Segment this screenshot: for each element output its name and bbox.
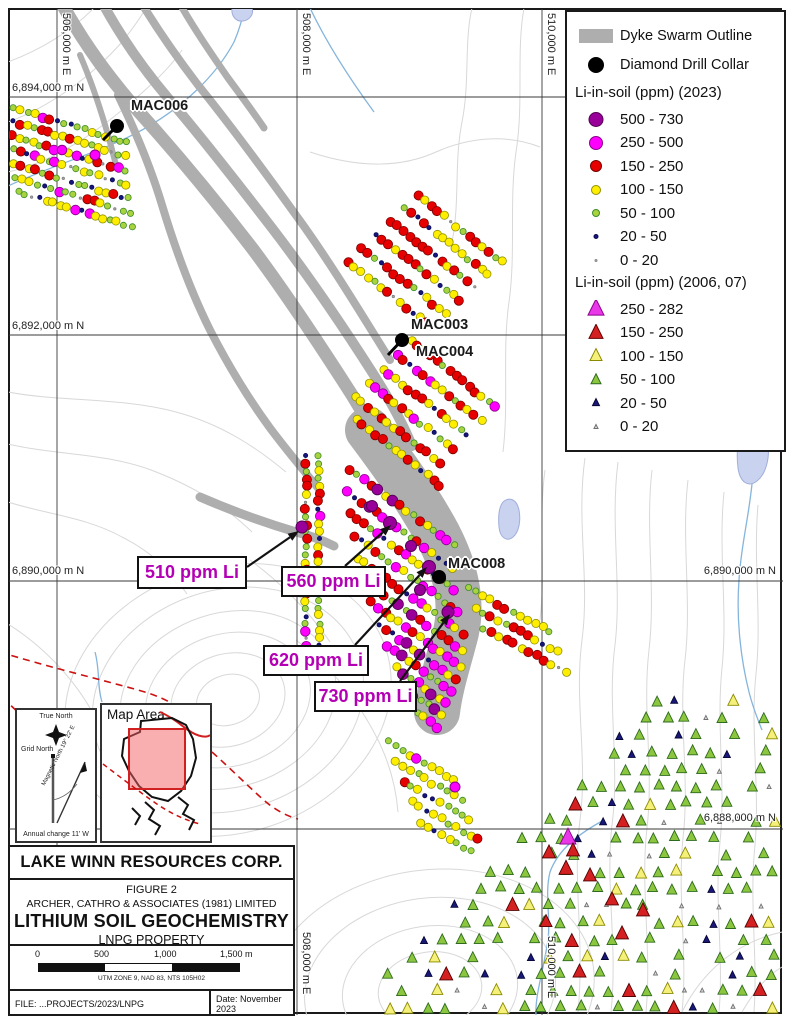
soil-sample-circle (390, 399, 398, 407)
soil-sample-circle (314, 610, 322, 618)
soil-sample-circle (122, 168, 128, 174)
legend-circle-icon (592, 209, 600, 217)
soil-sample-triangle (476, 883, 486, 893)
soil-sample-triangle (766, 970, 776, 980)
soil-sample-triangle (641, 712, 651, 722)
soil-sample-triangle (594, 914, 605, 925)
soil-sample-circle (438, 283, 442, 287)
soil-sample-triangle (654, 971, 658, 975)
soil-sample-circle (315, 453, 321, 459)
soil-sample-circle (365, 274, 373, 282)
soil-sample-triangle (730, 729, 740, 739)
soil-sample-circle (117, 138, 123, 144)
soil-sample-circle (379, 261, 383, 265)
soil-sample-circle (483, 270, 491, 278)
soil-sample-triangle (536, 832, 546, 842)
scale-tick: 0 (35, 949, 40, 959)
callout-ppm-0: 510 ppm Li (137, 556, 247, 589)
soil-sample-circle (301, 597, 309, 605)
soil-sample-triangle (697, 764, 707, 774)
legend-row-dyke: Dyke Swarm Outline (567, 25, 784, 47)
soil-sample-triangle (460, 917, 470, 927)
soil-sample-circle (73, 166, 79, 172)
soil-sample-triangle (572, 882, 582, 892)
soil-sample-circle (393, 743, 399, 749)
legend-range-label: 20 - 50 (620, 395, 667, 412)
soil-sample-circle (111, 136, 117, 142)
soil-sample-triangle (763, 916, 774, 927)
callout-ppm-1: 560 ppm Li (281, 566, 386, 597)
legend-header-2023: Li-in-soil (ppm) (2023) (575, 84, 722, 101)
soil-sample-circle (416, 633, 424, 641)
soil-sample-triangle (459, 967, 469, 977)
date-label: Date: November 2023 (209, 991, 293, 1016)
soil-sample-circle (115, 152, 121, 158)
soil-sample-circle (315, 527, 323, 535)
soil-sample-triangle (554, 883, 564, 893)
legend-circle-icon (591, 185, 601, 195)
soil-sample-triangle (503, 865, 513, 875)
soil-sample-circle (382, 418, 390, 426)
soil-sample-circle (357, 267, 365, 275)
soil-sample-circle (459, 427, 465, 433)
soil-sample-triangle (635, 782, 645, 792)
scale-tick: 1,000 (154, 949, 177, 959)
soil-sample-triangle (670, 969, 680, 979)
datum-note: UTM ZONE 9, NAD 83, NTS 105H02 (10, 975, 293, 982)
soil-sample-triangle (736, 952, 743, 959)
soil-sample-circle (23, 137, 29, 143)
soil-sample-circle (90, 185, 94, 189)
soil-sample-circle (62, 189, 68, 195)
soil-sample-circle (120, 222, 126, 228)
soil-sample-circle (401, 638, 412, 649)
soil-sample-circle (34, 182, 40, 188)
soil-sample-triangle (631, 885, 641, 895)
soil-sample-circle (419, 291, 423, 295)
soil-sample-triangle (737, 985, 747, 995)
soil-sample-triangle (517, 833, 527, 843)
soil-sample-triangle (679, 711, 689, 721)
soil-sample-circle (7, 131, 16, 140)
soil-sample-circle (58, 160, 66, 168)
north-arrow-graphic (17, 710, 95, 841)
soil-sample-triangle (499, 917, 510, 928)
soil-sample-triangle (721, 850, 731, 860)
soil-sample-triangle (704, 716, 708, 720)
soil-sample-triangle (682, 988, 686, 992)
soil-sample-circle (411, 311, 415, 315)
figure-block: FIGURE 2 ARCHER, CATHRO & ASSOCIATES (19… (10, 880, 293, 946)
soil-sample-triangle (709, 831, 719, 841)
soil-sample-triangle (576, 1000, 586, 1010)
soil-sample-circle (401, 205, 407, 211)
soil-sample-highlight (296, 521, 308, 533)
soil-sample-highlight (406, 541, 417, 552)
scale-tick: 500 (94, 949, 109, 959)
soil-sample-circle (546, 629, 552, 635)
soil-sample-triangle (577, 780, 587, 790)
soil-sample-triangle (671, 696, 678, 703)
soil-sample-circle (302, 514, 308, 520)
soil-sample-circle (421, 447, 430, 456)
drill-hole-label: MAC006 (131, 98, 188, 114)
legend-row: 0 - 20 (567, 249, 784, 271)
legend-triangle-icon (586, 347, 606, 365)
soil-sample-circle (65, 134, 74, 143)
soil-sample-circle (391, 631, 395, 635)
scale-bar (38, 963, 240, 972)
soil-sample-circle (469, 410, 478, 419)
soil-sample-triangle (618, 949, 629, 960)
soil-sample-triangle (569, 797, 582, 810)
soil-sample-triangle (653, 867, 663, 877)
soil-sample-triangle (723, 751, 730, 758)
soil-sample-circle (127, 210, 133, 216)
soil-sample-circle (302, 605, 308, 611)
soil-sample-triangle (397, 986, 407, 996)
legend-row: 100 - 150 (567, 345, 784, 367)
legend-row: 150 - 250 (567, 322, 784, 344)
legend-range-label: 50 - 100 (620, 205, 675, 222)
soil-sample-triangle (506, 897, 519, 910)
legend-triangle-icon (586, 394, 606, 412)
legend-circle-icon (595, 259, 598, 262)
soil-sample-triangle (670, 831, 680, 841)
soil-sample-triangle (731, 1004, 735, 1008)
soil-sample-circle (399, 762, 407, 770)
legend-range-label: 100 - 150 (620, 348, 683, 365)
soil-sample-triangle (712, 866, 722, 876)
soil-sample-circle (342, 487, 352, 497)
soil-sample-circle (304, 501, 306, 503)
soil-sample-triangle (705, 748, 715, 758)
soil-sample-triangle (402, 1002, 413, 1013)
figure-number: FIGURE 2 (10, 884, 293, 896)
soil-sample-circle (402, 304, 411, 313)
soil-sample-triangle (543, 899, 553, 909)
soil-sample-circle (480, 626, 486, 632)
soil-sample-triangle (686, 830, 696, 840)
soil-sample-circle (416, 421, 422, 427)
soil-sample-circle (96, 199, 104, 207)
callout-ppm-3: 730 ppm Li (314, 681, 417, 712)
soil-sample-triangle (681, 796, 691, 806)
soil-sample-circle (451, 244, 459, 252)
soil-sample-triangle (729, 971, 736, 978)
soil-sample-triangle (623, 984, 636, 997)
soil-sample-circle (418, 371, 427, 380)
soil-sample-triangle (585, 903, 589, 907)
soil-sample-circle (478, 416, 486, 424)
soil-sample-triangle (769, 949, 779, 959)
soil-sample-triangle (595, 1005, 599, 1009)
soil-sample-circle (425, 689, 436, 700)
soil-sample-circle (360, 474, 370, 484)
soil-sample-circle (458, 647, 466, 655)
legend-range-label: 500 - 730 (620, 111, 683, 128)
soil-sample-circle (53, 175, 59, 181)
soil-sample-circle (442, 414, 450, 422)
soil-sample-circle (438, 831, 446, 839)
soil-sample-triangle (614, 868, 624, 878)
soil-sample-triangle (666, 799, 676, 809)
soil-sample-circle (69, 122, 73, 126)
soil-sample-circle (95, 131, 101, 137)
soil-sample-triangle (671, 864, 682, 875)
soil-sample-triangle (421, 937, 428, 944)
soil-sample-circle (464, 433, 468, 437)
soil-sample-circle (110, 151, 112, 153)
soil-sample-triangle (731, 868, 741, 878)
soil-sample-triangle (650, 1001, 660, 1011)
soil-sample-triangle (662, 982, 673, 993)
soil-sample-circle (474, 286, 476, 288)
soil-sample-circle (457, 272, 463, 278)
soil-sample-circle (416, 215, 420, 219)
soil-sample-circle (437, 711, 445, 719)
soil-sample-circle (477, 392, 485, 400)
legend-range-label: 0 - 20 (620, 252, 658, 269)
soil-sample-circle (315, 520, 323, 528)
soil-sample-circle (459, 812, 465, 818)
soil-sample-circle (30, 165, 39, 174)
soil-sample-triangle (483, 1004, 487, 1008)
soil-sample-circle (432, 406, 436, 410)
soil-sample-triangle (717, 769, 721, 773)
soil-sample-circle (383, 240, 392, 249)
soil-sample-triangle (680, 904, 684, 908)
soil-sample-circle (403, 455, 412, 464)
soil-sample-circle (317, 536, 321, 540)
soil-sample-circle (303, 469, 309, 475)
soil-sample-circle (48, 185, 54, 191)
soil-sample-circle (490, 402, 500, 412)
soil-sample-circle (371, 408, 379, 416)
legend-range-label: 50 - 100 (620, 371, 675, 388)
easting-label: 508,000 m E (300, 13, 312, 75)
soil-sample-circle (425, 399, 433, 407)
soil-sample-circle (500, 604, 509, 613)
soil-sample-circle (426, 658, 430, 662)
legend-row: 0 - 20 (567, 416, 784, 438)
soil-sample-circle (315, 511, 325, 521)
northing-label: 6,890,000 m N (12, 565, 84, 577)
soil-sample-triangle (483, 916, 493, 926)
soil-sample-triangle (711, 780, 721, 790)
soil-sample-triangle (667, 748, 677, 758)
soil-sample-circle (411, 461, 419, 469)
soil-sample-circle (314, 543, 322, 551)
soil-sample-circle (419, 712, 427, 720)
soil-sample-circle (16, 161, 25, 170)
soil-sample-triangle (715, 952, 725, 962)
soil-sample-highlight (415, 585, 426, 596)
legend-circle-icon (590, 160, 602, 172)
soil-sample-highlight (90, 150, 100, 160)
soil-sample-circle (25, 152, 29, 156)
soil-sample-circle (444, 788, 450, 794)
soil-sample-circle (504, 621, 510, 627)
soil-sample-circle (82, 125, 88, 131)
soil-sample-triangle (616, 926, 629, 939)
map-area-inset: Map Area (100, 703, 212, 843)
soil-sample-circle (370, 383, 380, 393)
soil-sample-circle (314, 558, 322, 566)
soil-sample-triangle (688, 745, 698, 755)
soil-sample-triangle (755, 763, 765, 773)
soil-sample-circle (385, 738, 391, 744)
soil-sample-circle (436, 459, 445, 468)
soil-sample-circle (38, 195, 42, 199)
soil-sample-circle (367, 526, 373, 532)
soil-sample-circle (465, 816, 473, 824)
legend-triangle-icon (586, 418, 606, 436)
soil-sample-triangle (654, 918, 664, 928)
soil-sample-circle (372, 484, 383, 495)
soil-sample-triangle (491, 984, 502, 995)
soil-sample-circle (301, 459, 310, 468)
soil-sample-circle (563, 668, 571, 676)
soil-sample-circle (451, 675, 460, 684)
soil-sample-circle (468, 848, 474, 854)
soil-sample-circle (449, 586, 459, 596)
soil-sample-circle (431, 381, 439, 389)
callout-arrow-line (247, 537, 290, 567)
soil-sample-circle (398, 355, 407, 364)
soil-sample-circle (408, 628, 417, 637)
northing-label: 6,890,000 m N (704, 565, 776, 577)
soil-sample-circle (303, 534, 312, 543)
soil-sample-triangle (717, 713, 727, 723)
soil-sample-circle (304, 453, 308, 457)
soil-sample-circle (70, 191, 76, 197)
soil-sample-circle (70, 165, 72, 167)
soil-sample-circle (463, 277, 472, 286)
soil-sample-circle (45, 171, 54, 180)
soil-sample-triangle (383, 968, 393, 978)
soil-sample-circle (442, 535, 452, 545)
soil-sample-circle (498, 257, 506, 265)
soil-sample-triangle (589, 936, 599, 946)
soil-sample-circle (438, 783, 444, 789)
soil-sample-circle (411, 512, 417, 518)
soil-sample-triangle (608, 852, 612, 856)
soil-sample-triangle (573, 964, 586, 977)
northing-label: 6,892,000 m N (12, 320, 84, 332)
soil-sample-circle (393, 599, 404, 610)
soil-sample-circle (444, 581, 450, 587)
soil-sample-circle (385, 559, 391, 565)
soil-sample-circle (452, 542, 458, 548)
soil-sample-triangle (689, 1003, 696, 1010)
soil-sample-circle (305, 637, 307, 639)
soil-sample-circle (450, 220, 452, 222)
legend-label: Diamond Drill Collar (620, 57, 749, 73)
soil-sample-triangle (672, 916, 683, 927)
soil-sample-circle (423, 246, 432, 255)
soil-sample-triangle (593, 882, 603, 892)
soil-sample-circle (125, 194, 131, 200)
soil-sample-circle (359, 519, 368, 528)
soil-sample-circle (316, 507, 320, 511)
soil-sample-triangle (634, 729, 644, 739)
soil-sample-triangle (609, 748, 619, 758)
soil-sample-circle (392, 295, 394, 297)
legend-circle-icon (589, 136, 603, 150)
soil-sample-circle (363, 248, 372, 257)
soil-sample-triangle (717, 905, 721, 909)
soil-sample-circle (408, 362, 412, 366)
soil-sample-circle (405, 592, 409, 596)
soil-sample-triangle (703, 936, 710, 943)
soil-sample-circle (10, 105, 16, 111)
soil-sample-circle (99, 215, 107, 223)
soil-sample-triangle (767, 866, 777, 876)
soil-sample-triangle (532, 882, 542, 892)
soil-sample-circle (300, 504, 309, 513)
soil-sample-triangle (485, 866, 495, 876)
soil-sample-circle (423, 604, 431, 612)
soil-sample-circle (423, 293, 431, 301)
soil-sample-circle (102, 163, 104, 165)
drill-collar-icon (588, 57, 604, 73)
legend-range-label: 150 - 250 (620, 158, 683, 175)
soil-sample-circle (430, 797, 434, 801)
soil-sample-circle (25, 178, 33, 186)
soil-sample-triangle (691, 783, 701, 793)
soil-sample-triangle (687, 881, 697, 891)
soil-sample-circle (400, 566, 408, 574)
soil-sample-triangle (723, 883, 733, 893)
soil-sample-triangle (526, 985, 536, 995)
soil-sample-triangle (759, 848, 769, 858)
soil-sample-triangle (440, 1004, 450, 1014)
soil-sample-triangle (745, 914, 758, 927)
soil-sample-circle (448, 445, 457, 454)
soil-sample-circle (69, 180, 73, 184)
soil-sample-circle (437, 436, 443, 442)
soil-sample-circle (511, 609, 517, 615)
soil-sample-circle (494, 617, 502, 625)
soil-sample-circle (76, 181, 82, 187)
soil-sample-triangle (588, 850, 595, 857)
soil-sample-circle (379, 554, 385, 560)
soil-sample-triangle (754, 982, 767, 995)
soil-sample-circle (435, 304, 443, 312)
soil-sample-circle (95, 171, 103, 179)
soil-sample-circle (413, 785, 421, 793)
soil-sample-circle (15, 120, 24, 129)
soil-sample-triangle (637, 952, 647, 962)
soil-sample-circle (112, 217, 120, 225)
soil-sample-triangle (423, 1003, 433, 1013)
soil-sample-circle (428, 763, 436, 771)
soil-sample-circle (302, 490, 310, 498)
soil-sample-circle (25, 109, 31, 115)
soil-sample-circle (109, 189, 118, 198)
soil-sample-triangle (633, 1000, 643, 1010)
soil-sample-circle (532, 619, 540, 627)
property-outline (129, 729, 185, 789)
soil-sample-circle (417, 266, 423, 272)
soil-sample-circle (87, 170, 93, 176)
soil-sample-circle (104, 178, 106, 180)
soil-sample-triangle (565, 898, 575, 908)
soil-sample-circle (80, 139, 88, 147)
soil-sample-circle (421, 196, 429, 204)
soil-sample-triangle (667, 884, 677, 894)
